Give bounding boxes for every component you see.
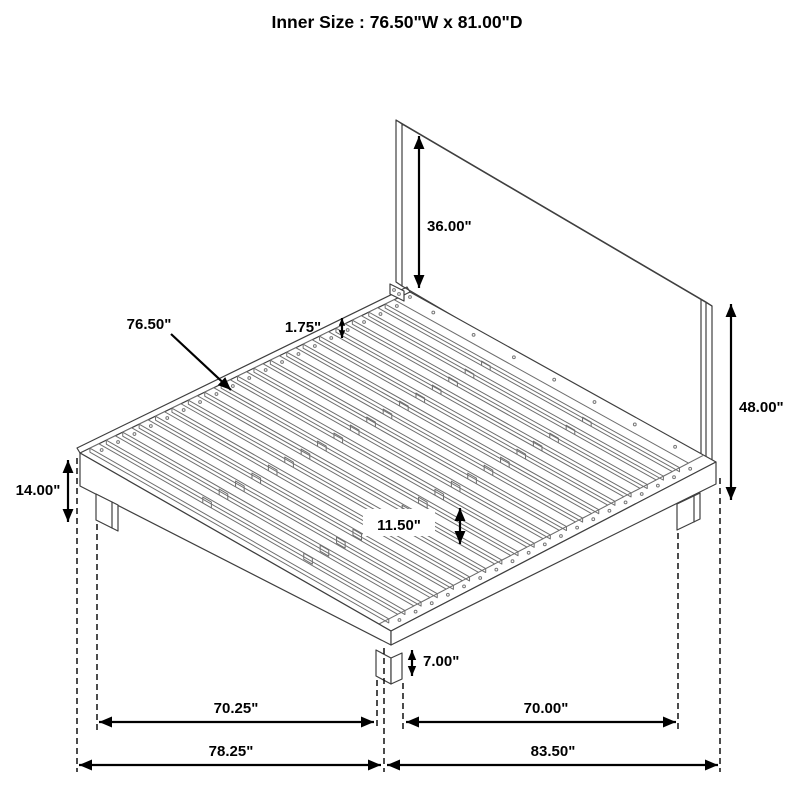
dim-leg-span-depth: 70.00" (524, 700, 569, 717)
dim-slat-length: 76.50" (127, 316, 172, 333)
arrowhead (368, 760, 381, 771)
dim-leg-height: 7.00" (423, 653, 459, 670)
arrowhead (705, 760, 718, 771)
arrowhead (663, 717, 676, 728)
arrowhead (387, 760, 400, 771)
arrowhead (726, 487, 737, 500)
dim-base-height: 14.00" (16, 482, 61, 499)
arrowhead (408, 666, 416, 676)
dim-slat-thickness: 1.75" (285, 319, 321, 336)
dim-overall-width: 78.25" (209, 743, 254, 760)
title: Inner Size : 76.50"W x 81.00"D (271, 12, 522, 32)
arrowhead (79, 760, 92, 771)
bed-dimension-diagram: Inner Size : 76.50"W x 81.00"D 36.00" 76… (0, 0, 800, 800)
dim-headboard-height: 36.00" (427, 218, 472, 235)
diagram-canvas: Inner Size : 76.50"W x 81.00"D 36.00" 76… (0, 0, 800, 800)
dim-leg-span-width: 70.25" (214, 700, 259, 717)
front-leg-side (391, 653, 402, 684)
arrowhead (63, 509, 74, 522)
dim-total-height: 48.00" (739, 399, 784, 416)
arrowhead (726, 304, 737, 317)
dim-overall-depth: 83.50" (531, 743, 576, 760)
dim-deck-height: 11.50" (377, 517, 421, 534)
arrowhead (406, 717, 419, 728)
arrowhead (361, 717, 374, 728)
arrowhead (99, 717, 112, 728)
arrowhead (408, 650, 416, 660)
arrowhead (63, 460, 74, 473)
